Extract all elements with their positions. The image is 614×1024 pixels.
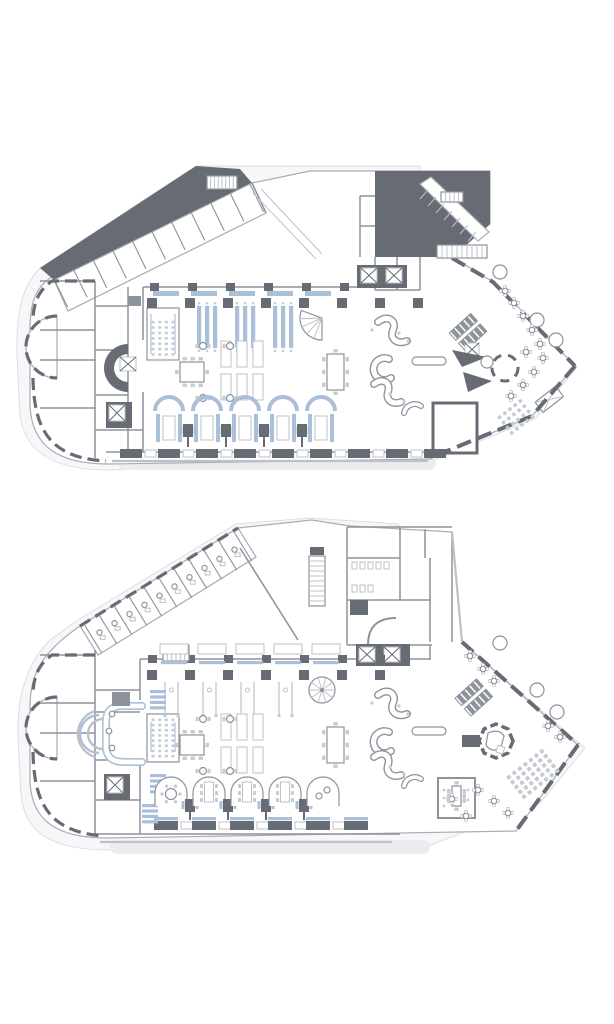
chair <box>454 781 459 785</box>
facade-pier-trim <box>306 817 330 820</box>
chair <box>276 791 279 795</box>
stool <box>397 704 400 707</box>
stool <box>109 745 115 751</box>
courtyard-stair-treads <box>211 176 234 189</box>
booth-column <box>259 424 269 437</box>
chair <box>174 800 177 803</box>
tree <box>530 683 544 697</box>
chair <box>223 396 226 401</box>
terrace-table <box>531 369 537 375</box>
office-chair <box>172 584 177 589</box>
meeting-seat <box>171 359 174 362</box>
chair <box>463 789 467 794</box>
seat <box>171 739 174 742</box>
wall-table <box>181 822 193 829</box>
chair <box>290 350 293 353</box>
cafe-table <box>227 395 234 402</box>
meeting-seat <box>152 332 155 335</box>
office-chair <box>187 575 192 580</box>
terrace-table <box>508 393 514 399</box>
tree <box>493 636 507 650</box>
chair <box>447 789 451 794</box>
chair <box>191 357 196 361</box>
lounge-room <box>147 714 179 762</box>
seat-dot <box>443 797 446 800</box>
chair <box>274 350 277 353</box>
meeting-seat <box>158 337 161 340</box>
terrace-table <box>545 723 551 729</box>
fixture <box>360 562 365 569</box>
long-table <box>327 727 344 763</box>
trim <box>258 801 261 809</box>
meeting-seat <box>165 359 168 362</box>
fixture <box>352 585 357 592</box>
chair <box>447 794 451 799</box>
pilaster <box>338 655 347 663</box>
booth-table <box>163 416 175 440</box>
chair <box>196 717 199 722</box>
wall-table <box>274 644 302 654</box>
column <box>375 298 385 308</box>
booth-bench <box>232 414 236 442</box>
stool <box>402 399 405 402</box>
table <box>205 782 214 802</box>
office-desk <box>130 617 135 621</box>
chair <box>282 350 285 353</box>
long-table <box>180 362 204 382</box>
chair <box>346 383 350 388</box>
long-table <box>180 735 204 755</box>
seat <box>165 734 168 737</box>
dining-bench <box>213 306 217 348</box>
wall-table <box>297 450 308 457</box>
wall-table-trim <box>313 661 339 664</box>
chair <box>276 798 279 802</box>
chair <box>191 384 196 388</box>
table <box>316 793 322 799</box>
meeting-seat <box>165 321 168 324</box>
seat <box>152 755 155 758</box>
chair <box>322 383 326 388</box>
office-chair <box>202 565 207 570</box>
seat <box>171 755 174 758</box>
seat <box>165 729 168 732</box>
office-desk <box>145 608 150 612</box>
seat <box>171 734 174 737</box>
booth-column <box>183 424 193 437</box>
wall-table <box>198 644 226 654</box>
wall-table <box>259 450 270 457</box>
fixture <box>352 562 357 569</box>
wall-table <box>160 644 188 654</box>
shelf <box>150 706 166 709</box>
cafe-table <box>227 768 234 775</box>
seat <box>152 719 155 722</box>
wall-table <box>333 822 345 829</box>
chair <box>175 370 179 375</box>
chair <box>196 344 199 349</box>
facade-pier <box>424 449 446 458</box>
meeting-seat <box>165 348 168 351</box>
terrace-table <box>467 653 473 659</box>
stool <box>406 339 409 342</box>
chair <box>215 791 218 795</box>
core-stair <box>441 192 463 202</box>
chair <box>199 384 204 388</box>
column <box>413 298 423 308</box>
chair <box>223 344 226 349</box>
chair <box>276 784 279 788</box>
long-table <box>327 354 344 390</box>
meeting-seat <box>152 337 155 340</box>
counter <box>412 727 446 735</box>
seat <box>152 724 155 727</box>
chair <box>208 344 211 349</box>
chair <box>291 791 294 795</box>
chair <box>165 785 168 788</box>
chair <box>206 370 210 375</box>
wall-table <box>373 450 384 457</box>
column <box>185 298 195 308</box>
chair <box>253 784 256 788</box>
chair <box>454 808 459 812</box>
terrace-seat <box>509 430 514 435</box>
office-chair <box>127 611 132 616</box>
shelf <box>142 820 158 823</box>
chair <box>290 714 293 717</box>
meeting-seat <box>165 332 168 335</box>
booth-bench <box>308 414 312 442</box>
chair <box>322 743 326 748</box>
column <box>147 670 157 680</box>
meeting-seat <box>165 337 168 340</box>
office-chair <box>112 621 117 626</box>
table <box>253 374 263 400</box>
booth-trim <box>180 426 183 434</box>
booth-table <box>239 416 251 440</box>
seat-dot <box>467 789 470 792</box>
seat <box>158 719 161 722</box>
chair <box>291 798 294 802</box>
seat-dot <box>467 799 470 802</box>
seat <box>158 739 161 742</box>
chair <box>290 302 293 305</box>
cafe-table <box>227 343 234 350</box>
chair <box>346 743 350 748</box>
banquette <box>267 291 293 296</box>
facade-pier-trim <box>268 817 292 820</box>
chair <box>215 784 218 788</box>
dining-bench <box>281 306 285 348</box>
shelf <box>142 815 158 818</box>
chair <box>236 302 239 305</box>
stool <box>106 728 112 734</box>
facade-pier <box>386 449 408 458</box>
chair <box>333 349 338 353</box>
fixture <box>376 562 381 569</box>
chair <box>322 730 326 735</box>
chair <box>199 757 204 761</box>
pilaster <box>150 283 159 291</box>
office-desk <box>205 571 210 575</box>
terrace-table <box>520 313 526 319</box>
terrace-table <box>537 341 543 347</box>
cafe-table <box>200 343 207 350</box>
meeting-seat <box>171 348 174 351</box>
seat <box>152 739 155 742</box>
page <box>0 0 614 1024</box>
terrace-table <box>529 327 535 333</box>
chair <box>253 791 256 795</box>
pilaster <box>188 283 197 291</box>
chair <box>252 302 255 305</box>
chair <box>199 357 204 361</box>
seat <box>165 745 168 748</box>
booth-trim <box>218 426 221 434</box>
booth-trim <box>256 426 259 434</box>
booth-table <box>277 416 289 440</box>
chair <box>346 730 350 735</box>
meeting-seat <box>158 321 161 324</box>
meeting-seat <box>158 348 161 351</box>
corner-room <box>433 403 477 453</box>
terrace-table <box>520 382 526 388</box>
facade-pier <box>310 449 332 458</box>
office-desk <box>100 636 105 640</box>
wall-table <box>295 822 307 829</box>
chair <box>214 714 217 717</box>
booth-column <box>297 424 307 437</box>
terrace-table <box>463 813 469 819</box>
seat <box>158 745 161 748</box>
stool <box>397 331 400 334</box>
seat <box>171 750 174 753</box>
chair <box>198 350 201 353</box>
chair <box>246 688 250 692</box>
chair <box>174 785 177 788</box>
chair <box>238 784 241 788</box>
meeting-seat <box>165 326 168 329</box>
chair <box>274 302 277 305</box>
office-desk <box>115 627 120 631</box>
meeting-seat <box>158 326 161 329</box>
stool <box>109 711 115 717</box>
spiral-stair-post <box>320 688 324 692</box>
banquette <box>191 291 217 296</box>
counter <box>412 357 446 365</box>
terrace-table <box>480 666 486 672</box>
meeting-seat <box>158 342 161 345</box>
dark-room <box>350 600 368 615</box>
chair <box>284 688 288 692</box>
trim <box>220 801 223 809</box>
office-desk <box>220 562 225 566</box>
pilaster <box>264 283 273 291</box>
office-chair <box>97 630 102 635</box>
meeting-seat <box>171 321 174 324</box>
meeting-seat <box>152 321 155 324</box>
table <box>253 341 263 367</box>
chair <box>175 743 179 748</box>
seat <box>152 750 155 753</box>
chair <box>200 798 203 802</box>
column <box>337 298 347 308</box>
wall-table <box>219 822 231 829</box>
lower-floor-plan <box>18 518 585 854</box>
seat <box>152 729 155 732</box>
booth-column <box>221 424 231 437</box>
column <box>261 298 271 308</box>
column <box>299 670 309 680</box>
chair <box>322 357 326 362</box>
table <box>243 782 252 802</box>
chair <box>238 791 241 795</box>
column <box>185 670 195 680</box>
chair <box>206 743 210 748</box>
chair <box>183 357 188 361</box>
pilaster <box>340 283 349 291</box>
meeting-seat <box>152 342 155 345</box>
banquette <box>305 291 331 296</box>
stool <box>402 772 405 775</box>
shelf <box>150 774 166 777</box>
chair <box>463 799 467 804</box>
chair <box>208 717 211 722</box>
table <box>253 747 263 773</box>
meeting-seat <box>158 332 161 335</box>
duct-block <box>128 296 141 306</box>
shelf <box>150 695 166 698</box>
wall-table <box>145 450 156 457</box>
column <box>261 670 271 680</box>
shelf <box>150 701 166 704</box>
chair <box>165 800 168 803</box>
seat <box>158 734 161 737</box>
seat <box>152 734 155 737</box>
office-desk <box>190 581 195 585</box>
meeting-seat <box>158 359 161 362</box>
terrace-table <box>491 798 497 804</box>
seat <box>158 755 161 758</box>
chair <box>163 714 166 717</box>
seat-dot <box>443 805 446 808</box>
seat <box>165 755 168 758</box>
pilaster <box>148 655 157 663</box>
chair <box>160 792 163 795</box>
facade-pier <box>272 449 294 458</box>
chair <box>206 350 209 353</box>
booth-table <box>315 416 327 440</box>
terrace-table <box>540 355 546 361</box>
wall-table-trim <box>275 661 301 664</box>
pilaster <box>300 655 309 663</box>
meeting-seat <box>165 342 168 345</box>
chair <box>183 757 188 761</box>
round-table <box>481 356 493 368</box>
wall-table-trim <box>237 661 263 664</box>
column <box>147 298 157 308</box>
office-desk <box>175 590 180 594</box>
terrace-table <box>511 300 517 306</box>
cafe-table <box>227 716 234 723</box>
table <box>237 714 247 740</box>
chair <box>191 757 196 761</box>
chair <box>191 730 196 734</box>
meeting-seat <box>152 353 155 356</box>
wall-table <box>183 450 194 457</box>
cafe-table <box>200 768 207 775</box>
wall-table <box>221 450 232 457</box>
table <box>237 341 247 367</box>
stool <box>370 328 373 331</box>
office-chair <box>217 556 222 561</box>
office-desk <box>160 599 165 603</box>
facade-pier <box>196 449 218 458</box>
booth-bench <box>270 414 274 442</box>
upper-floor-plan <box>17 166 577 470</box>
column <box>299 298 309 308</box>
facade-pier-trim <box>344 817 368 820</box>
chair <box>333 765 338 769</box>
column <box>223 298 233 308</box>
chair <box>183 384 188 388</box>
chair <box>277 714 280 717</box>
terrace-table <box>502 288 508 294</box>
seat <box>158 729 161 732</box>
chair <box>346 756 350 761</box>
stool <box>406 712 409 715</box>
chair <box>215 798 218 802</box>
meeting-seat <box>152 326 155 329</box>
stool <box>388 765 391 768</box>
chair <box>214 302 217 305</box>
chair <box>333 722 338 726</box>
office-chair <box>232 547 237 552</box>
chair <box>214 350 217 353</box>
table <box>281 782 290 802</box>
tree <box>493 265 507 279</box>
tree <box>549 333 563 347</box>
pilaster <box>226 283 235 291</box>
stool <box>388 392 391 395</box>
booth-trim <box>294 426 297 434</box>
escalator-cap <box>310 547 324 555</box>
chair <box>322 756 326 761</box>
facade-pier <box>234 449 256 458</box>
seat <box>158 724 161 727</box>
wall-table <box>411 450 422 457</box>
facade-pier <box>120 449 142 458</box>
column <box>375 670 385 680</box>
chair <box>199 730 204 734</box>
terrace-table <box>505 810 511 816</box>
meeting-seat <box>152 348 155 351</box>
column <box>337 670 347 680</box>
facade-pier <box>268 821 292 830</box>
floor-plans-figure <box>0 0 614 1024</box>
chair <box>198 302 201 305</box>
seat <box>171 745 174 748</box>
chair <box>200 784 203 788</box>
duct-block <box>112 692 130 706</box>
wall-table-trim <box>161 661 187 664</box>
wall-table <box>335 450 346 457</box>
chair <box>176 714 179 717</box>
chair <box>346 370 350 375</box>
seat <box>165 719 168 722</box>
meeting-seat <box>171 342 174 345</box>
chair <box>244 302 247 305</box>
